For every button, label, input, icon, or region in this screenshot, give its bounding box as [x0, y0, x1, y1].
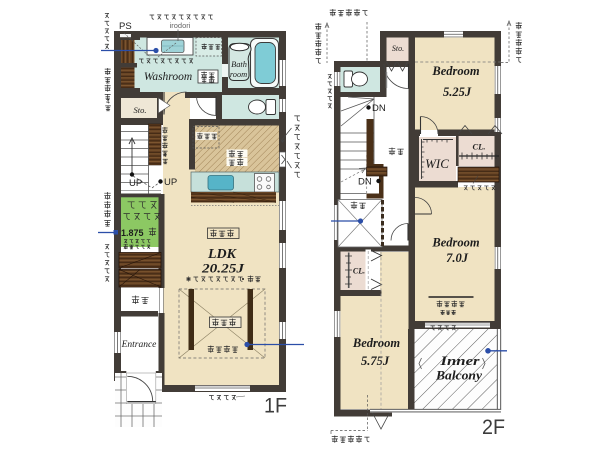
svg-text:CL.: CL.	[353, 267, 365, 276]
svg-text:5.75J: 5.75J	[361, 354, 390, 368]
svg-text:PS: PS	[119, 21, 132, 32]
svg-text:DN: DN	[358, 177, 372, 188]
svg-text:room: room	[230, 70, 247, 79]
svg-text:UP: UP	[164, 177, 177, 188]
svg-text:Washroom: Washroom	[144, 71, 192, 83]
svg-text:UP: UP	[129, 178, 142, 189]
svg-text:2F: 2F	[482, 415, 505, 439]
svg-text:5.25J: 5.25J	[443, 85, 472, 99]
svg-text:WIC: WIC	[425, 156, 449, 171]
svg-text:Bedroom: Bedroom	[352, 336, 401, 350]
svg-text:Entrance: Entrance	[121, 340, 157, 350]
svg-text:Balcony: Balcony	[435, 369, 483, 383]
svg-text:20.25J: 20.25J	[201, 261, 245, 276]
svg-text:1F: 1F	[264, 394, 287, 418]
svg-text:Sto.: Sto.	[134, 105, 147, 115]
svg-text:Bedroom: Bedroom	[431, 64, 480, 78]
svg-text:irodori: irodori	[170, 21, 191, 30]
svg-text:Bedroom: Bedroom	[431, 236, 480, 250]
svg-text:DN: DN	[372, 103, 386, 114]
svg-text:CL.: CL.	[473, 142, 486, 152]
svg-text:Bath: Bath	[231, 60, 247, 69]
svg-text:1.875: 1.875	[121, 228, 144, 238]
svg-text:Inner: Inner	[439, 354, 480, 368]
svg-text:Sto.: Sto.	[392, 44, 404, 53]
svg-text:7.0J: 7.0J	[446, 251, 469, 265]
svg-text:4: 4	[106, 99, 110, 106]
